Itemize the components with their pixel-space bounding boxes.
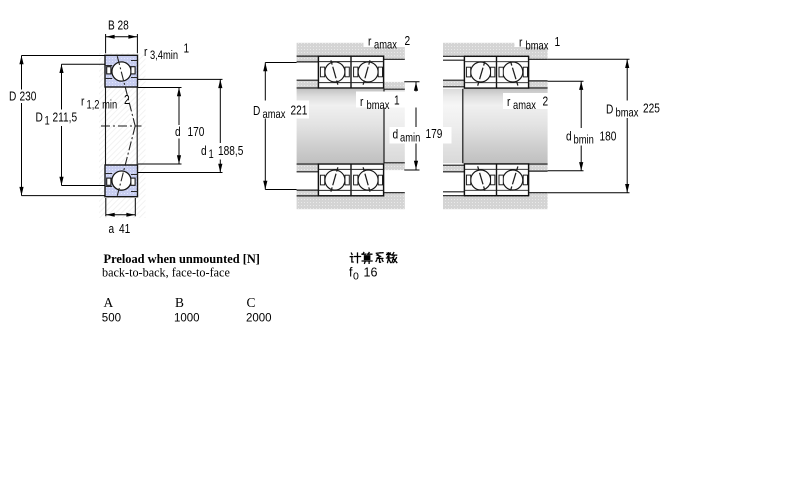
svg-text:500: 500 (102, 312, 121, 324)
svg-text:1000: 1000 (174, 312, 200, 324)
svg-text:2000: 2000 (246, 312, 272, 324)
svg-text:d: d (566, 129, 572, 143)
svg-text:2: 2 (405, 34, 411, 48)
svg-text:A: A (104, 295, 114, 310)
svg-text:0: 0 (353, 271, 359, 283)
svg-text:C: C (247, 295, 256, 310)
svg-text:1,2 min: 1,2 min (87, 98, 118, 111)
svg-text:1: 1 (555, 35, 561, 49)
svg-text:B: B (108, 18, 115, 32)
svg-text:r: r (507, 95, 510, 109)
svg-text:188,5: 188,5 (218, 144, 243, 158)
svg-text:2: 2 (124, 93, 130, 107)
svg-text:d: d (201, 144, 207, 158)
svg-text:16: 16 (364, 266, 378, 280)
svg-text:bmax: bmax (526, 39, 549, 52)
svg-text:2: 2 (543, 94, 549, 108)
svg-text:170: 170 (188, 125, 205, 139)
svg-text:180: 180 (600, 129, 617, 143)
svg-text:r: r (81, 94, 84, 108)
svg-text:a: a (109, 222, 115, 236)
svg-text:d: d (175, 125, 181, 139)
svg-text:D: D (9, 89, 16, 103)
svg-text:3,4min: 3,4min (150, 49, 178, 62)
svg-text:28: 28 (118, 18, 129, 32)
svg-text:D: D (36, 110, 43, 124)
svg-text:r: r (144, 45, 147, 59)
svg-text:1: 1 (184, 41, 190, 55)
svg-text:211,5: 211,5 (53, 110, 78, 124)
svg-text:bmax: bmax (616, 106, 639, 119)
svg-text:B: B (175, 295, 184, 310)
svg-text:221: 221 (291, 103, 308, 117)
svg-text:D: D (253, 104, 260, 118)
svg-text:179: 179 (426, 127, 443, 141)
svg-text:1: 1 (394, 93, 400, 107)
svg-text:41: 41 (119, 222, 130, 236)
svg-text:amax: amax (263, 108, 286, 121)
svg-text:amax: amax (513, 99, 536, 112)
svg-text:back-to-back, face-to-face: back-to-back, face-to-face (102, 266, 230, 280)
svg-text:amax: amax (374, 38, 397, 51)
svg-text:1: 1 (45, 114, 50, 127)
svg-text:230: 230 (20, 89, 37, 103)
svg-text:Preload when unmounted [N]: Preload when unmounted [N] (104, 252, 260, 266)
svg-text:225: 225 (643, 101, 660, 115)
svg-text:bmax: bmax (367, 99, 390, 112)
svg-text:1: 1 (209, 148, 214, 161)
svg-text:amin: amin (400, 131, 420, 144)
svg-text:bmin: bmin (574, 133, 594, 146)
svg-text:r: r (360, 95, 363, 109)
svg-text:r: r (519, 35, 522, 49)
svg-text:d: d (393, 127, 399, 141)
svg-text:r: r (368, 34, 371, 48)
svg-text:D: D (606, 102, 613, 116)
